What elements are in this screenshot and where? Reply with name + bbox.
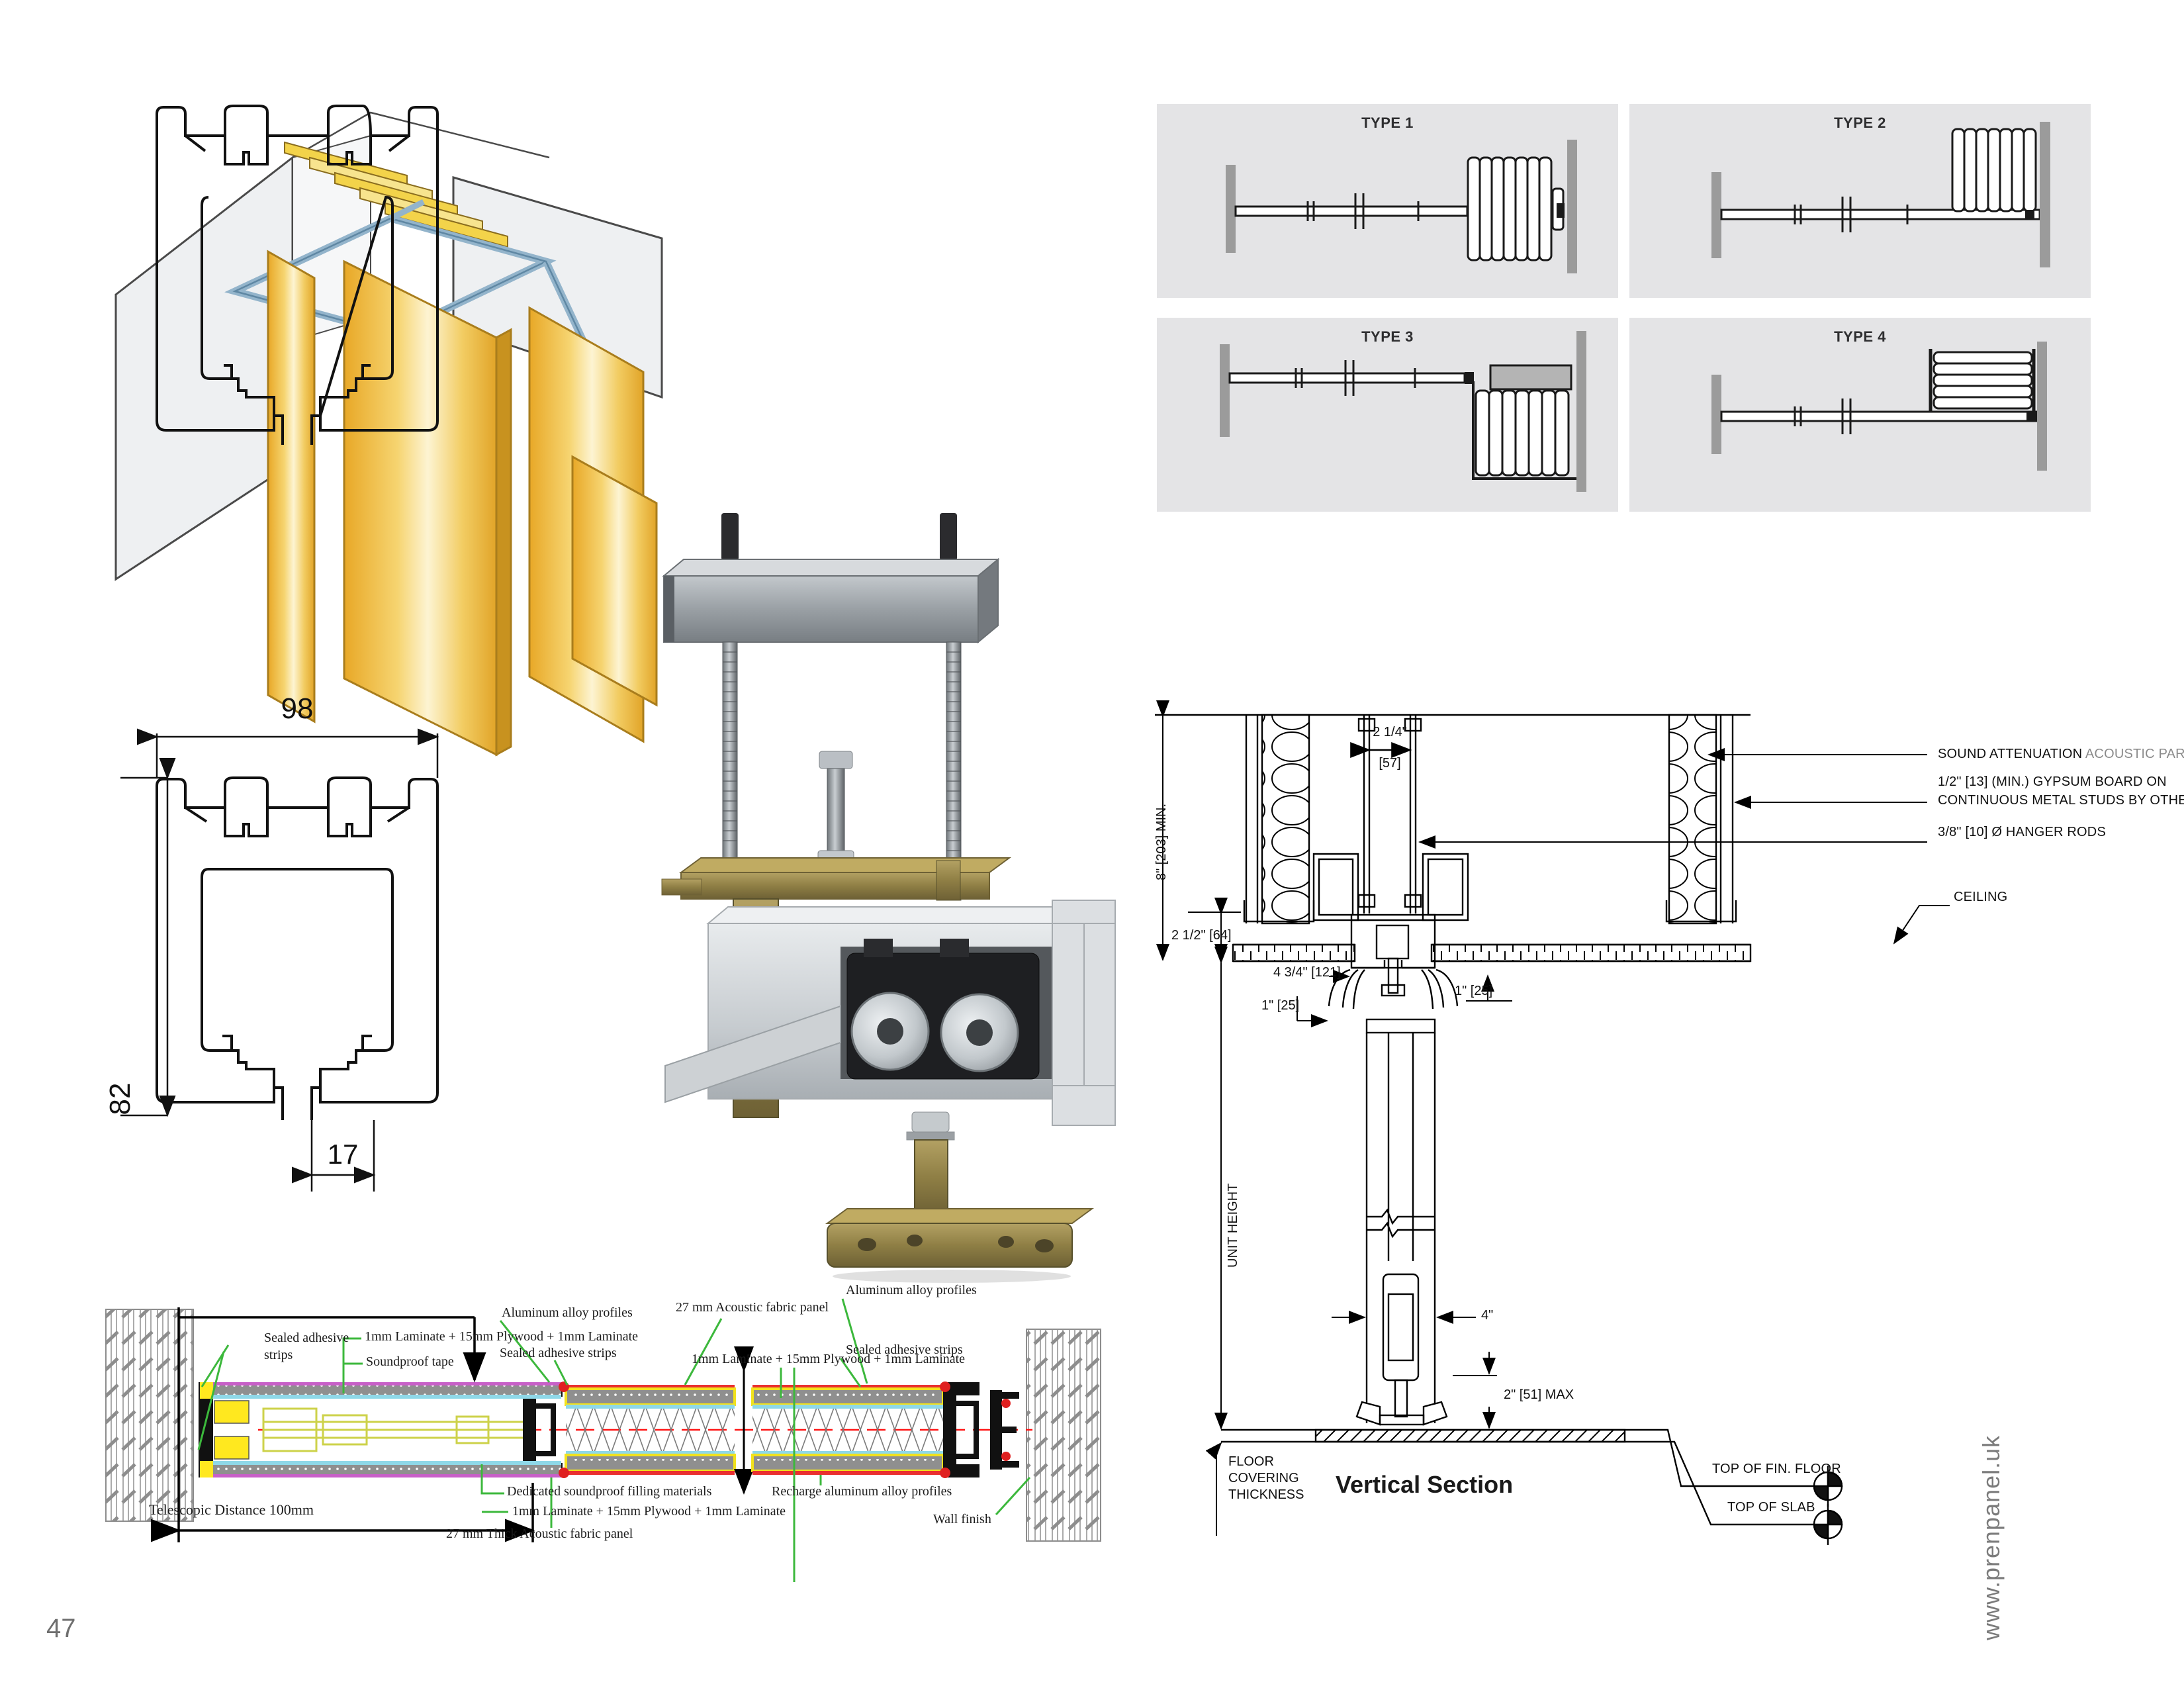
metal-stud [1423, 854, 1468, 920]
stacked-panels [1931, 349, 2034, 412]
label-gypsum-2: CONTINUOUS METAL STUDS BY OTHERS [1938, 793, 2184, 808]
label-ceiling: CEILING [1954, 890, 2007, 905]
dim-one-inch-right: 1" [25] [1455, 984, 1492, 999]
floor-covering-line3: THICKNESS [1228, 1487, 1304, 1503]
wall-left-hatched [106, 1309, 193, 1521]
top-steel-bar [664, 559, 998, 642]
stacked-panels [1468, 158, 1563, 260]
dimension-lines [1155, 715, 1512, 1536]
dim-98: 98 [281, 692, 314, 725]
dim-unit-height: UNIT HEIGHT [1226, 1184, 1241, 1268]
acoustic-seals [1329, 970, 1457, 1009]
label-laminate-center: 1mm Laminate + 15mm Plywood + 1mm Lamina… [365, 1329, 638, 1344]
track-and-panels [1230, 360, 1465, 396]
wall-right [1567, 140, 1577, 273]
label-recharge-profiles: Recharge aluminum alloy profiles [772, 1484, 952, 1499]
acoustic-panel-1 [566, 1385, 735, 1475]
dim-min-height: 8" [203] MIN. [1154, 804, 1169, 880]
label-sealed-center: Sealed adhesive strips [500, 1346, 617, 1361]
wall-right [2037, 342, 2047, 471]
label-wall-finish: Wall finish [933, 1512, 991, 1527]
wall-left [1226, 165, 1236, 253]
track-profile-drawing: 98 82 17 [93, 675, 596, 1225]
dim-floor-clearance: 2" [51] MAX [1504, 1387, 1574, 1403]
acoustic-partition-text: ACOUSTIC PARTITION [2085, 747, 2184, 761]
type1-plan [1157, 104, 1618, 298]
end-connector [2025, 210, 2034, 219]
bottom-spindle [827, 1112, 1092, 1283]
wall-left [1711, 172, 1721, 258]
dim-panel-thickness: 4" [1481, 1308, 1493, 1323]
hanger-stud-right [940, 513, 957, 561]
stacked-panels [1476, 391, 1569, 475]
dim-17: 17 [328, 1139, 359, 1170]
left-stud-wall [1244, 715, 1314, 923]
dim-gap: 2 1/4" [1350, 725, 1430, 740]
type3-diagram: TYPE 3 [1157, 318, 1618, 512]
website-url: www.prenpanel.uk [1978, 1429, 2005, 1640]
pocket [1490, 365, 1571, 389]
type4-plan [1629, 318, 2091, 512]
catalog-page: TYPE 1 TYPE 2 [0, 0, 2184, 1688]
trolley-carrier-render [629, 490, 1125, 1311]
label-top-fin-floor: TOP OF FIN. FLOOR [1712, 1462, 1841, 1477]
end-connector [1557, 203, 1565, 218]
type4-diagram: TYPE 4 [1629, 318, 2091, 512]
end-connector [1465, 372, 1474, 384]
type2-diagram: TYPE 2 [1629, 104, 2091, 298]
label-fabric-bottom: 27 mm Thick Acoustic fabric panel [446, 1526, 633, 1542]
dim-82: 82 [104, 1083, 136, 1115]
label-sealed-left-1: Sealed adhesive [264, 1331, 349, 1346]
label-fabric-top: 27 mm Acoustic fabric panel [676, 1300, 829, 1315]
wall-left [1711, 375, 1721, 454]
center-stud [818, 751, 854, 868]
label-telescopic-distance: Telescopic Distance 100mm [149, 1501, 314, 1519]
telescopic-end-unit [199, 1382, 563, 1477]
sound-attenuation-text: SOUND ATTENUATION [1938, 747, 2082, 761]
label-floor-covering: FLOOR COVERING THICKNESS [1228, 1454, 1304, 1503]
type1-diagram: TYPE 1 [1157, 104, 1618, 298]
right-stud-wall [1666, 715, 1736, 923]
dim-ceiling-gap: 2 1/2" [64] [1171, 928, 1232, 943]
horizontal-section-drawing [99, 1271, 1105, 1602]
floor-covering-line1: FLOOR [1228, 1454, 1304, 1470]
wall-right [1576, 331, 1586, 492]
label-top-slab: TOP OF SLAB [1727, 1500, 1815, 1515]
metal-stud [1314, 854, 1358, 920]
panel-section [1357, 1019, 1447, 1425]
label-hanger-rods: 3/8" [10] Ø HANGER RODS [1938, 825, 2106, 840]
label-sealed-left-2: strips [264, 1348, 293, 1363]
wall-right [2040, 122, 2050, 267]
label-soundproof-tape: Soundproof tape [366, 1354, 454, 1370]
end-connector [2026, 412, 2037, 421]
track-assembly [1351, 915, 1435, 996]
label-laminate-bottom: 1mm Laminate + 15mm Plywood + 1mm Lamina… [512, 1504, 786, 1519]
type2-plan [1629, 104, 2091, 298]
roller-carrier [847, 939, 1039, 1079]
vertical-section-title: Vertical Section [1336, 1471, 1513, 1499]
wall-left [1220, 344, 1230, 437]
type3-plan [1157, 318, 1618, 512]
label-aluminum-right: Aluminum alloy profiles [846, 1283, 977, 1298]
datum-symbols [1814, 1466, 1842, 1545]
dim-one-inch-left: 1" [25] [1261, 998, 1299, 1013]
hanger-stud-left [721, 513, 739, 561]
telescopic-mechanism [263, 1409, 536, 1451]
hanger-rods [1359, 715, 1421, 914]
ceiling-band [1233, 945, 1751, 961]
dim-track-width: 4 3/4" [121] [1273, 965, 1341, 980]
label-dedicated-filling: Dedicated soundproof filling materials [507, 1484, 711, 1499]
isometric-partition-illustration [113, 99, 662, 768]
stacked-panels [1952, 129, 2036, 211]
label-sound-attenuation: SOUND ATTENUATION ACOUSTIC PARTITION [1938, 747, 2184, 762]
dim-gap-mm: [57] [1350, 756, 1430, 771]
acoustic-panel-2 [752, 1385, 943, 1475]
wall-right-hatched [1026, 1329, 1101, 1541]
track-and-panels [1236, 193, 1467, 229]
label-aluminum-center: Aluminum alloy profiles [502, 1305, 633, 1321]
label-gypsum-1: 1/2" [13] (MIN.) GYPSUM BOARD ON [1938, 774, 2167, 790]
page-number: 47 [46, 1614, 76, 1644]
floor-covering-line2: COVERING [1228, 1470, 1304, 1487]
profile-body [157, 778, 437, 1120]
label-laminate-right: 1mm Laminate + 15mm Plywood + 1mm Lamina… [692, 1352, 965, 1367]
